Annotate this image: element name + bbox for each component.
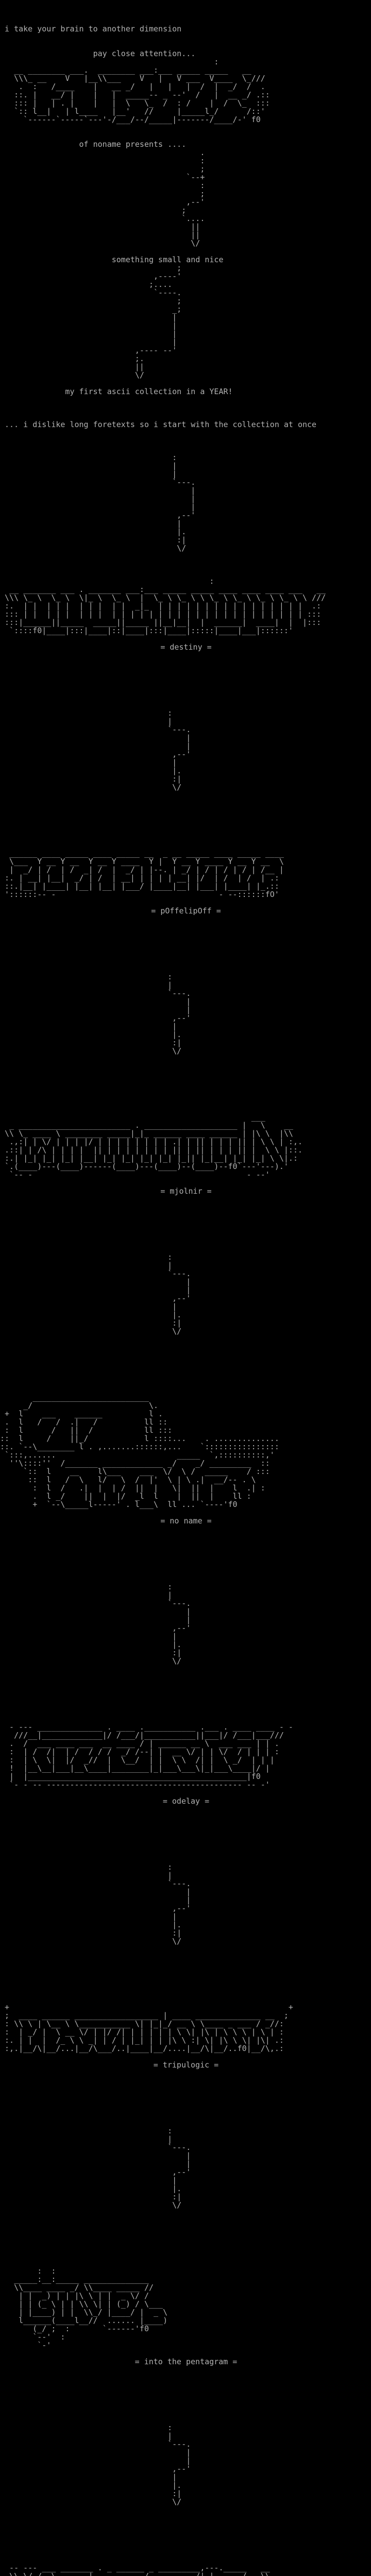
- connector-art: : | `---. | |: [0, 659, 371, 849]
- connector-art: : | `---. | |: [0, 923, 371, 1113]
- caption-no-name: = no name =: [0, 1517, 371, 1525]
- ascii-logo-destiny: : __ _______ ___ . _______ ___:___ _____…: [0, 577, 371, 635]
- ascii-logo-poffelipoff: ______ ____ _____ ____ _____ __ _ __ ___…: [0, 849, 371, 899]
- caption-tripulogic: = tripulogic =: [0, 2061, 371, 2069]
- ascii-logo-malicious-force: -- --- ___ _______ . _ ______ _ ________…: [0, 2564, 371, 2576]
- caption-text: = destiny =: [160, 642, 211, 652]
- caption-destiny: = destiny =: [0, 643, 371, 651]
- connector-art: ; ,----' ;.... `----. ; _;: [0, 264, 371, 379]
- caption-mjolnir: = mjolnir =: [0, 1187, 371, 1195]
- connector-art: : | `---. | |: [0, 1204, 371, 1393]
- caption-text: = tripulogic =: [154, 2060, 218, 2070]
- connector-long-arrow: : | | `---. |: [0, 429, 371, 577]
- small-and-nice-line: something small and nice: [0, 247, 371, 264]
- header-logo: : __ ________ ___. ________ ___:___ ____…: [0, 58, 371, 124]
- connector-art: : | `---. | |: [0, 2374, 371, 2564]
- connector-art: : | `---. | |: [0, 1533, 371, 1723]
- caption-text: = into the pentagram =: [135, 2357, 238, 2366]
- intro-text: i take your brain to another dimension p…: [0, 0, 371, 58]
- ascii-logo-mjolnir: ___ _ ________________________ . _______…: [0, 1113, 371, 1179]
- caption-text: = pOffelipOff =: [151, 906, 221, 916]
- ascii-logo-tripulogic: + + ; ____ ______ __________________ | _…: [0, 2003, 371, 2053]
- caption-text: = mjolnir =: [160, 1187, 211, 1196]
- connector-art: . : ; `--+ :: [0, 148, 371, 247]
- ascii-logo-into-the-pentagram: : : _____:__:_____ ______________ \\____…: [0, 2267, 371, 2349]
- caption-poffelipoff: = pOffelipOff =: [0, 907, 371, 915]
- ascii-collection-document: i take your brain to another dimension p…: [0, 0, 371, 2576]
- connector-art: : | `---. | |: [0, 1814, 371, 2003]
- caption-text: = odelay =: [163, 1797, 209, 1806]
- caption-text: = no name =: [160, 1516, 211, 1526]
- caption-into-the-pentagram: = into the pentagram =: [0, 2358, 371, 2366]
- caption-odelay: = odelay =: [0, 1797, 371, 1805]
- ascii-logo-odelay: - --- ______________ . ____ .___________…: [0, 1723, 371, 1789]
- presents-line: of noname presents ....: [0, 124, 371, 148]
- connector-art: : | `---. | |: [0, 2077, 371, 2267]
- foretext-lines: my first ascii collection in a YEAR! ...…: [0, 379, 371, 429]
- ascii-logo-no-name: _________________________ _/ \. + l ___ …: [0, 1393, 371, 1509]
